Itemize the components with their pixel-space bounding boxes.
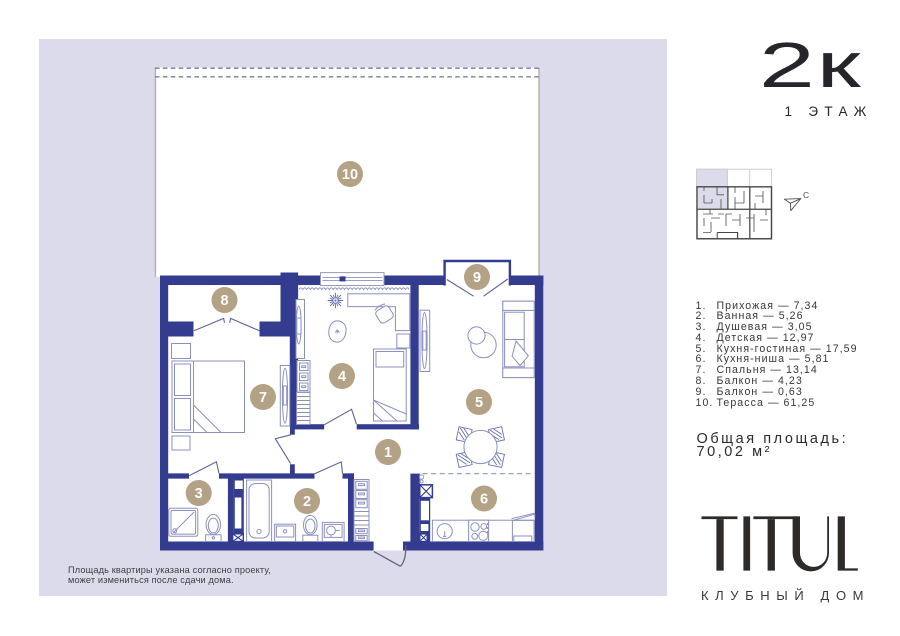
svg-text:5: 5 [475, 395, 483, 411]
svg-text:9: 9 [473, 270, 481, 286]
svg-text:3: 3 [195, 486, 203, 502]
svg-text:7: 7 [259, 390, 267, 406]
svg-text:2: 2 [303, 494, 311, 510]
svg-text:10: 10 [342, 167, 358, 183]
svg-text:1: 1 [384, 445, 392, 461]
svg-text:8: 8 [220, 293, 228, 309]
svg-text:4: 4 [338, 369, 346, 385]
svg-text:6: 6 [480, 492, 488, 508]
